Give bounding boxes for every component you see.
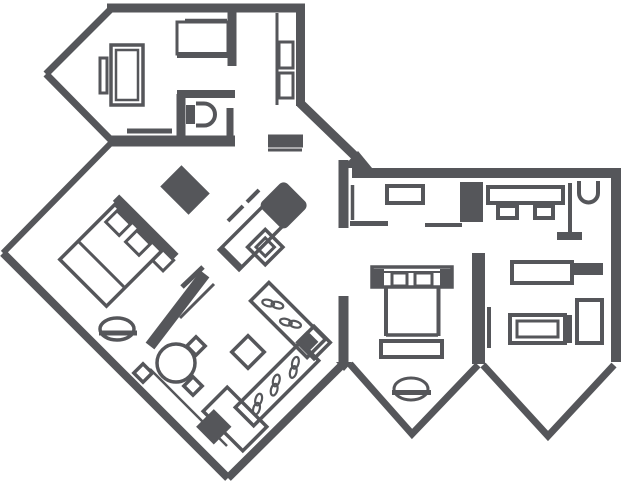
office-desk-chair xyxy=(100,58,107,93)
wardrobe-shelf-1 xyxy=(279,42,293,68)
bedroom-upper-diagonal-wall xyxy=(3,143,111,253)
wardrobe-shelf-2 xyxy=(279,73,293,98)
floor-plan-svg xyxy=(0,0,621,486)
kitchen-fridge xyxy=(258,180,309,231)
study-desk-return xyxy=(572,263,603,275)
entry-rug xyxy=(160,165,209,214)
tv-screen xyxy=(517,321,558,337)
wall-picture xyxy=(387,186,423,203)
entry-rug-group xyxy=(160,165,209,214)
kitchen-door-dash-2 xyxy=(247,190,259,202)
master-bedroom xyxy=(372,186,452,400)
study-desk xyxy=(512,262,572,283)
bed-outline xyxy=(60,204,162,306)
closet-block-wall xyxy=(460,182,483,222)
bed-sheet-line xyxy=(78,241,125,288)
console-bench xyxy=(177,22,228,54)
living-right-diagonal-wall xyxy=(228,366,341,478)
kitchen-stove-inner xyxy=(256,238,274,256)
bedroom-bed-group xyxy=(57,194,179,316)
decor-console-upper xyxy=(251,283,326,358)
diagonal-wall-to-right-wing xyxy=(300,103,358,159)
ceiling-fixture xyxy=(394,378,428,400)
dining-chair-1 xyxy=(187,337,205,355)
bedroom xyxy=(57,194,214,346)
kitchen-counter-end xyxy=(221,248,241,268)
kitchen-stove xyxy=(248,229,283,264)
entry-kitchen xyxy=(160,165,317,280)
master-pillow-1 xyxy=(392,273,407,286)
walls xyxy=(3,8,621,478)
study-tv-room xyxy=(488,181,603,343)
floor-plan-page xyxy=(0,0,621,486)
dining-chair-3 xyxy=(134,364,152,382)
dresser-stool-1 xyxy=(498,206,517,218)
office-desk-top xyxy=(116,50,138,100)
master-headboard-end-right xyxy=(440,269,451,286)
toilet-right xyxy=(579,181,598,203)
office-room xyxy=(100,13,293,140)
kitchenette-group xyxy=(216,180,316,280)
office-wall-upper-diagonal xyxy=(46,8,112,74)
toilet-tank xyxy=(186,105,195,124)
dresser-stool-2 xyxy=(535,206,553,218)
dresser xyxy=(488,187,563,203)
living-dining xyxy=(134,283,330,463)
armchair xyxy=(577,300,602,343)
kitchen-door-dash-1 xyxy=(228,206,243,221)
toilet-bowl xyxy=(196,104,215,126)
ottoman xyxy=(232,336,265,369)
tv-cabinet-box xyxy=(196,409,231,444)
bay-window-right xyxy=(483,365,614,436)
master-bed-foot-bench xyxy=(381,341,442,357)
oval-stool xyxy=(100,318,134,340)
master-headboard-end-left xyxy=(373,269,384,286)
master-pillow-2 xyxy=(415,273,432,286)
